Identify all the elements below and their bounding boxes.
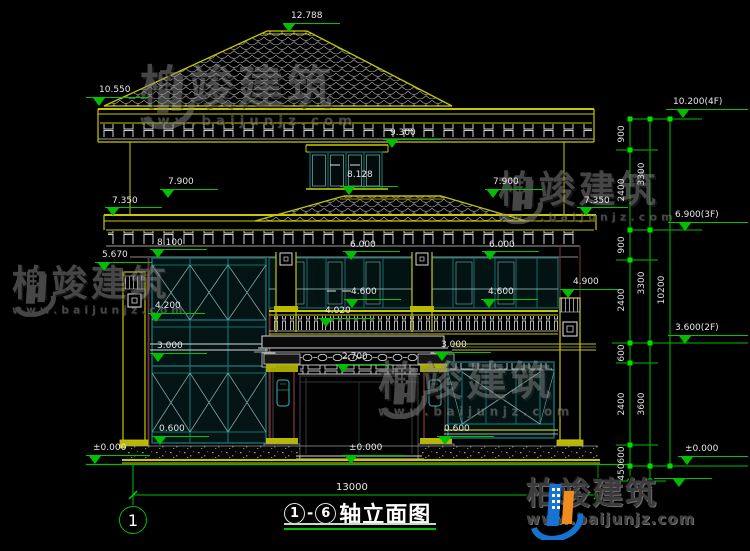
level-marker-triangle [107, 208, 119, 216]
dimension-chain-label: 600 [617, 446, 627, 463]
level-marker-triangle [345, 252, 357, 260]
level-marker-triangle [484, 252, 496, 260]
level-marker-triangle [345, 456, 357, 464]
grid-bubble-1: 1 [119, 506, 147, 534]
level-marker-triangle [93, 98, 105, 106]
level-marker-label: 2.700 [342, 352, 368, 362]
level-marker-label: 4.020 [325, 306, 351, 316]
level-marker-triangle [150, 314, 162, 322]
level-marker-triangle [98, 263, 110, 271]
level-marker-label: 7.900 [493, 177, 519, 187]
level-marker-triangle [677, 110, 689, 118]
level-marker-triangle [386, 140, 398, 148]
level-marker-label: 3.000 [441, 340, 467, 350]
brand-logo: 柏竣建筑 www.baijunjz.com [526, 478, 695, 528]
penthouse-door [306, 145, 388, 189]
level-marker-label: 3.000 [157, 341, 183, 351]
dimension-chain-label: 600 [617, 344, 627, 361]
level-marker-label: 8.128 [347, 170, 373, 180]
brand-logo-icon [526, 478, 586, 540]
level-marker-label: ±0.000 [93, 443, 126, 453]
dimension-chain-label: 2400 [617, 179, 627, 202]
cad-elevation-screenshot: 1 - 6 轴立面图 1 13000 柏竣建筑 www.baijunjz.com… [0, 0, 750, 551]
level-marker-label: 4.600 [488, 287, 514, 297]
dimension-chain-label: 3300 [637, 272, 647, 295]
title-separator: - [307, 504, 313, 522]
level-marker-triangle [679, 336, 691, 344]
level-marker-label: 7.350 [584, 196, 610, 206]
level-marker-triangle [89, 456, 101, 464]
level-marker-label: 0.600 [159, 424, 185, 434]
dimension-chain-label: 2400 [617, 393, 627, 416]
level-marker-label: 4.600 [351, 287, 377, 297]
dimension-chain [612, 117, 748, 484]
level-marker-triangle [436, 353, 448, 361]
level-marker-label: 3.600(2F) [675, 323, 719, 333]
dimension-chain-label: 3300 [637, 163, 647, 186]
level-marker-label: 6.000 [350, 240, 376, 250]
level-marker-label: 0.600 [444, 424, 470, 434]
level-marker-label: 12.788 [291, 11, 323, 21]
title-underline [284, 523, 436, 525]
level-marker-label: ±0.000 [349, 443, 382, 453]
title-axis-start: 1 [284, 503, 305, 524]
dimension-chain-label: 900 [617, 125, 627, 142]
level-marker-triangle [337, 365, 349, 373]
level-marker-triangle [283, 24, 295, 32]
level-marker-label: 6.900(3F) [675, 210, 719, 220]
level-marker-triangle [152, 354, 164, 362]
level-marker-triangle [439, 437, 451, 445]
level-marker-triangle [152, 250, 164, 258]
dimension-chain-label: 3600 [637, 393, 647, 416]
level-marker-label: ±0.000 [685, 444, 718, 454]
level-marker-label: 7.900 [168, 177, 194, 187]
level-marker-triangle [681, 457, 693, 465]
level-marker-triangle [580, 208, 592, 216]
title-underline-green [284, 528, 436, 530]
level-marker-label: 5.670 [102, 250, 128, 260]
level-marker-label: 7.350 [112, 196, 138, 206]
level-marker-triangle [162, 190, 174, 198]
level-marker-label: 8.100 [157, 238, 183, 248]
level-marker-triangle [320, 319, 332, 327]
level-marker-triangle [679, 223, 691, 231]
left-pier [120, 272, 148, 448]
title-axis-end: 6 [315, 503, 336, 524]
level-marker-triangle [562, 290, 574, 298]
level-marker-label: 10.200(4F) [673, 97, 722, 107]
level-marker-label: 4.200 [155, 301, 181, 311]
level-marker-label: 6.000 [489, 240, 515, 250]
dimension-chain-label: 900 [617, 236, 627, 253]
level-marker-triangle [487, 190, 499, 198]
overall-dimension-label: 13000 [336, 482, 368, 493]
level-marker-triangle [343, 187, 355, 195]
porch-roof [255, 196, 526, 221]
level-marker-label: 10.550 [99, 85, 131, 95]
dimension-chain-label: 2400 [617, 289, 627, 312]
level-marker-triangle [483, 300, 495, 308]
level-marker-triangle [154, 437, 166, 445]
main-roof [104, 31, 452, 106]
stair-lattice-window [149, 258, 270, 446]
level-marker-label: 9.300 [390, 128, 416, 138]
dimension-chain-label: 10200 [657, 276, 667, 305]
top-eave [98, 109, 594, 142]
level-marker-label: 4.900 [573, 277, 599, 287]
